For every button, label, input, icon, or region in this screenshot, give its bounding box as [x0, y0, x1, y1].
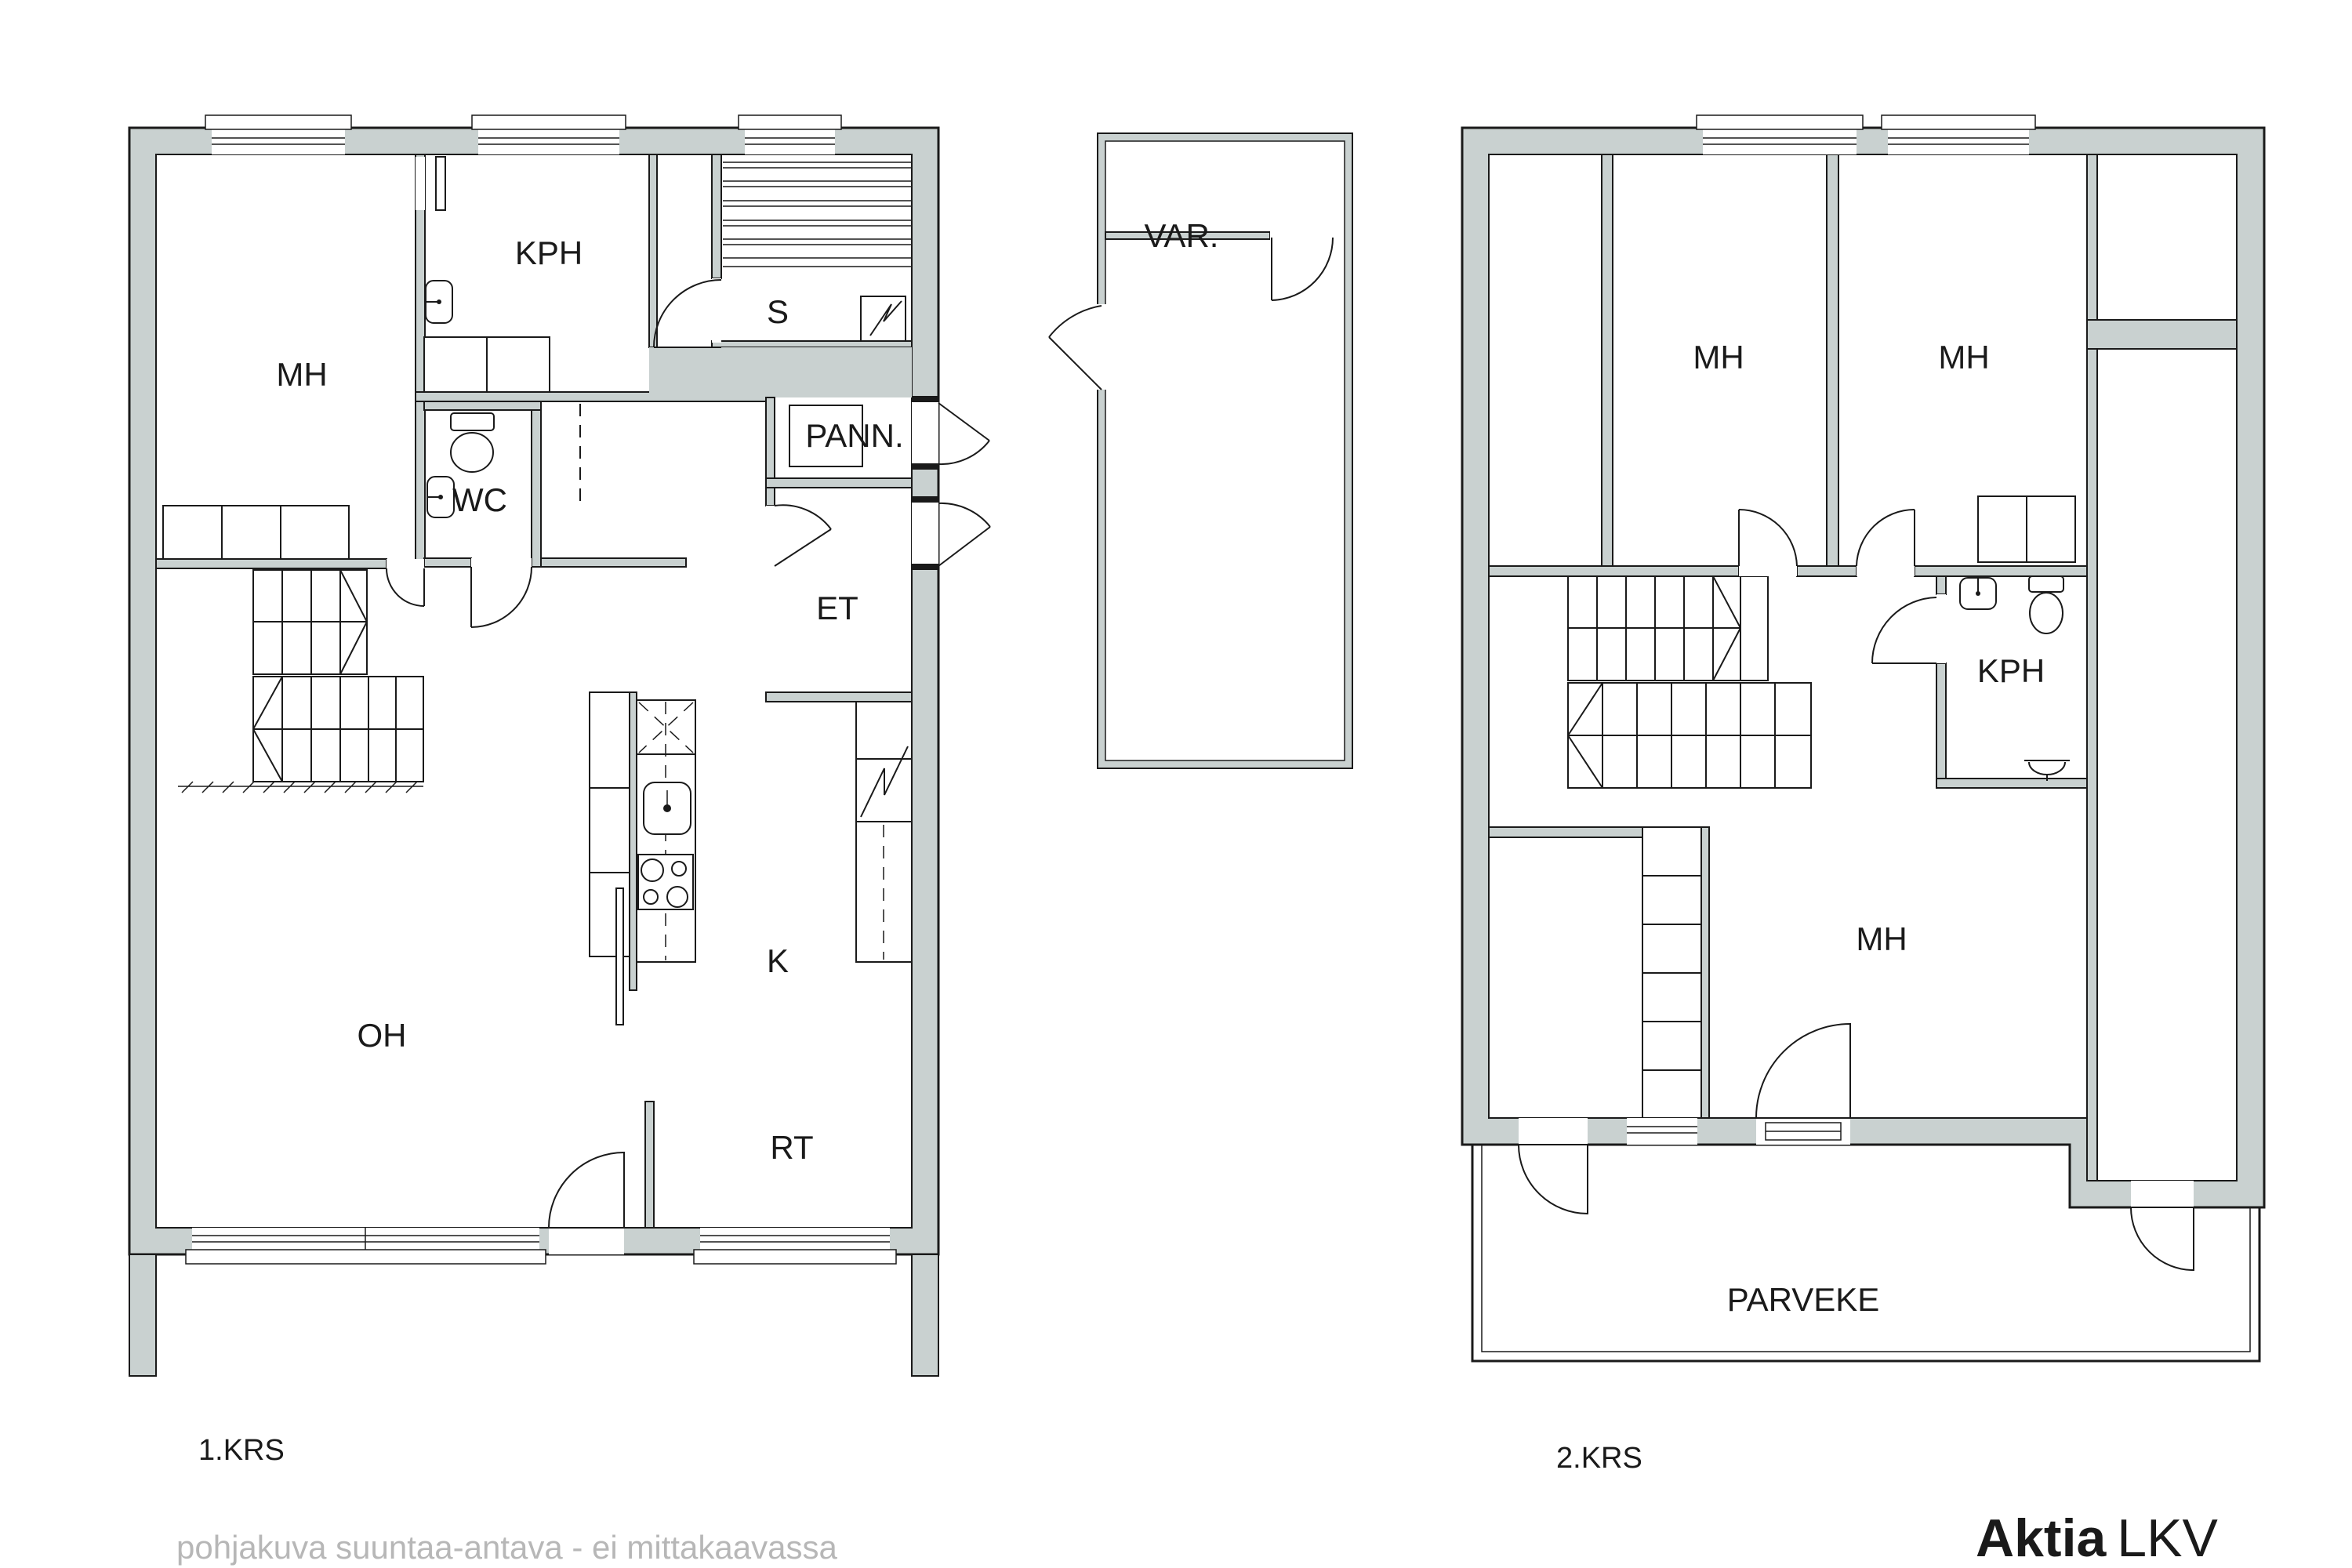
room-label-pann: PANN. [805, 417, 903, 454]
door-icon [1270, 230, 1333, 300]
room-label-var: VAR. [1145, 217, 1219, 254]
brand-light: LKV [2117, 1508, 2218, 1568]
room-label-s: S [767, 293, 789, 330]
kitchen-island [637, 700, 695, 962]
toilet-icon [451, 413, 494, 472]
exterior-door-icon [912, 396, 989, 470]
sink-icon [426, 281, 452, 323]
room-label-kph: KPH [515, 234, 583, 271]
room-label-parveke: PARVEKE [1727, 1281, 1880, 1318]
sink-icon [1960, 578, 1996, 609]
floor1-right-wall-stub [912, 1254, 938, 1376]
room-label-et: ET [816, 590, 858, 626]
room-label-mh-top-right: MH [1938, 339, 1989, 376]
wardrobe-icon [163, 506, 349, 559]
floor2-title: 2.KRS [1556, 1442, 1642, 1475]
room-label-oh: OH [358, 1017, 407, 1054]
room-label-k: K [767, 942, 789, 979]
floor1-top-windows [205, 115, 841, 154]
fridge-icon [856, 702, 912, 962]
room-label-mh-top-left: MH [1693, 339, 1744, 376]
storage-annex: VAR. [1049, 133, 1352, 768]
sink-icon [427, 477, 454, 517]
window-icon [1697, 115, 1863, 154]
stove-icon [638, 855, 693, 909]
brand-bold: Aktia [1976, 1508, 2107, 1568]
window-icon [739, 115, 841, 154]
brand-logo: AktiaLKV [1976, 1508, 2218, 1568]
room-label-rt: RT [770, 1129, 813, 1166]
kitchen-sink-icon [644, 782, 691, 834]
door-icon [1049, 304, 1107, 390]
floorplan-page: MH KPH S PANN. WC ET K OH RT 1.KRS VAR. [0, 0, 2352, 1568]
window-icon [186, 1228, 546, 1264]
disclaimer-text: pohjakuva suuntaa-antava - ei mittakaava… [176, 1529, 837, 1566]
exterior-door-icon [912, 496, 990, 570]
toilet-icon [2029, 576, 2063, 633]
floor1-left-wall-stub [129, 1254, 156, 1376]
window-icon [1882, 115, 2035, 154]
wardrobe-icon [1978, 496, 2075, 562]
window-icon [1627, 1118, 1697, 1145]
closet-column [1642, 827, 1701, 1118]
floor2-plan: MH MH KPH MH PARVEKE 2.KRS [1462, 115, 2264, 1475]
room-label-mh-lower: MH [1856, 920, 1907, 957]
room-label-mh: MH [276, 356, 327, 393]
bathroom-counter [424, 337, 550, 392]
room-label-wc: WC [452, 481, 507, 518]
window-icon [694, 1228, 896, 1264]
floor1-title: 1.KRS [198, 1434, 285, 1467]
room-label-kph2: KPH [1977, 652, 2045, 689]
floor1-plan: MH KPH S PANN. WC ET K OH RT 1.KRS [129, 115, 990, 1467]
counter-edge [616, 888, 623, 1025]
window-icon [472, 115, 626, 154]
floorplan-drawing: MH KPH S PANN. WC ET K OH RT 1.KRS VAR. [0, 0, 2352, 1568]
sauna-heater-icon [861, 296, 906, 341]
window-icon [205, 115, 351, 154]
